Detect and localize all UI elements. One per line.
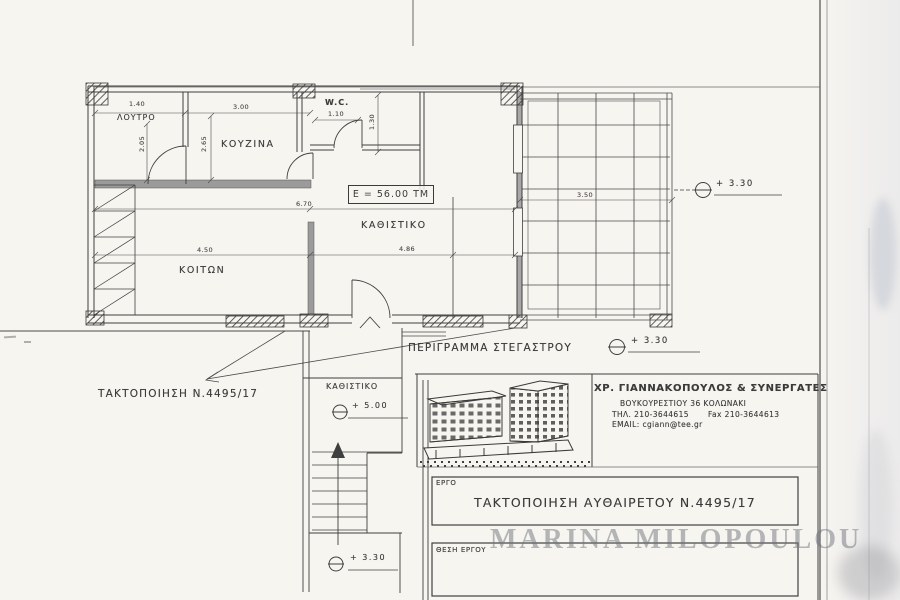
project-label: ΕΡΓΟ [436,479,456,487]
room-label-kathistiko: ΚΑΘΙΣΤΙΚΟ [361,220,427,231]
firm-logo-building-sketch [424,381,573,459]
door-swings [148,120,390,328]
sheet-borders [0,0,869,600]
scan-speck [24,341,31,343]
firm-email: EMAIL: cgiann@tee.gr [612,420,703,429]
project-title: ΤΑΚΤΟΠΟΙΗΣΗ ΑΥΘΑΙΡΕΤΟΥ Ν.4495/17 [432,495,798,510]
firm-name: ΧΡ. ΓΙΑΝΝΑΚΟΠΟΥΛΟΣ & ΣΥΝΕΡΓΑΤΕΣ [594,383,816,394]
terrace-grid [520,93,672,320]
room-label-wc: W.C. [325,98,349,107]
floor-plan-drawing [0,0,900,600]
dim-wc-width: 1.10 [328,110,344,118]
dim-kathistiko-width: 4.86 [399,245,415,253]
firm-tel: ΤΗΛ. 210-3644615 [612,410,689,419]
area-label-box: Ε = 56.00 ΤΜ [348,185,434,204]
room-label-kouzina: ΚΟΥΖΙΝΑ [221,139,275,150]
annotation-canopy-outline: ΠΕΡΙΓΡΑΜΜΑ ΣΤΕΓΑΣΤΡΟΥ [408,342,572,354]
room-label-koiton: ΚΟΙΤΩΝ [179,265,225,276]
dimension-lines [92,92,675,258]
firm-address: ΒΟΥΚΟΥΡΕΣΤΙΟΥ 36 ΚΟΛΩΝΑΚΙ [620,399,746,408]
annotation-regularization: ΤΑΚΤΟΠΟΙΗΣΗ Ν.4495/17 [98,388,258,400]
dim-loutro-height: 2.05 [138,136,146,152]
firm-fax: Fax 210-3644613 [708,410,779,419]
room-label-kathistiko-stair: ΚΑΘΙΣΤΙΚΟ [326,382,378,391]
scanned-floor-plan-sheet: ΛΟΥΤΡΟ 1.40 3.00 2.05 2.65 ΚΟΥΖΙΝΑ W.C. … [0,0,900,600]
dim-loutro-width: 1.40 [129,100,145,108]
dim-terrace-width: 3.50 [577,191,593,199]
canopy-outline-lines [402,332,446,336]
dim-kouzina-width: 3.00 [233,103,249,111]
elevation-terrace: + 3.30 [716,179,754,189]
elevation-canopy: + 3.30 [631,336,669,346]
elevation-markers [328,183,782,572]
watermark-text: MARINA MILOPOULOU [490,524,862,556]
room-label-loutro: ΛΟΥΤΡΟ [117,113,156,122]
dim-kouzina-height: 2.65 [200,136,208,152]
elevation-stair-base: + 3.30 [350,553,386,562]
dim-koiton-width: 4.50 [197,246,213,254]
dim-total-width: 6.70 [296,200,312,208]
elevation-stair-mid: + 5.00 [352,401,388,410]
location-label: ΘΕΣΗ ΕΡΓΟΥ [436,546,486,554]
dim-wc-height: 1.30 [368,114,376,130]
